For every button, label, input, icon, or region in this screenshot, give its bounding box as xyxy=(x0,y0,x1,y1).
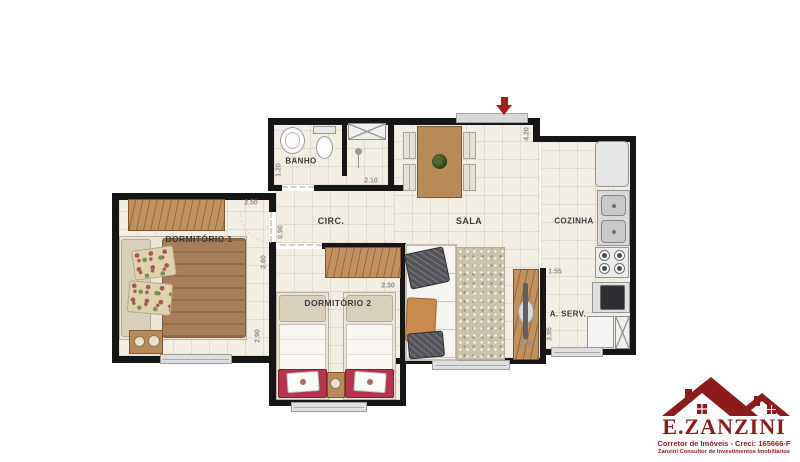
measure-dorm1-2-50: 2.50 xyxy=(244,200,258,207)
entry-door xyxy=(456,113,528,123)
window-aserv xyxy=(551,347,603,357)
sink-basin-2 xyxy=(601,220,626,243)
wall-shower-divider xyxy=(342,118,347,176)
entrance-arrow-stem xyxy=(501,97,508,105)
stove-burner-4 xyxy=(614,263,625,274)
dining-chair-4 xyxy=(463,164,476,191)
wall-right-cozinha xyxy=(630,136,636,355)
room-label-dorm2: DORMITÓRIO 2 xyxy=(304,298,371,308)
lamp-dorm2-icon xyxy=(330,378,341,389)
bathroom-sink-icon xyxy=(280,127,305,154)
measure-dorm1-2-90: 2.90 xyxy=(255,329,262,343)
bed-dorm1-pillow-2 xyxy=(127,280,174,316)
laundry-tank-icon xyxy=(587,316,614,348)
sink-basin-1 xyxy=(601,195,626,216)
wall-divider-aserv xyxy=(540,268,546,353)
measure-shower-2-10: 2.10 xyxy=(364,178,378,185)
measure-dorm2-2-30: 2.30 xyxy=(381,283,395,290)
wall-center-upper xyxy=(269,193,276,212)
dining-chair-3 xyxy=(463,132,476,159)
bed-dorm2-b-sheet xyxy=(346,324,393,371)
measure-circ-0-90: 0.90 xyxy=(278,225,285,239)
logo-name: E.ZANZINI xyxy=(650,416,798,438)
door-dorm2 xyxy=(280,244,322,246)
measure-banho-1-20: 1.20 xyxy=(276,163,283,177)
room-label-cozinha: COZINHA xyxy=(554,217,593,226)
dining-chair-2 xyxy=(403,164,416,191)
wall-bottom-banho-a xyxy=(268,185,282,191)
room-label-banho: BANHO xyxy=(285,157,316,166)
decor-dorm1-icon xyxy=(148,335,160,347)
rug xyxy=(456,247,505,360)
wall-bottom-banho-b xyxy=(314,185,394,191)
window-dorm1 xyxy=(160,354,232,364)
lamp-dorm1-icon xyxy=(134,336,145,347)
stove-burner-1 xyxy=(599,250,610,261)
wall-left-banho xyxy=(268,118,274,191)
table-plant-icon xyxy=(432,154,447,169)
bed-dorm2-a-sheet xyxy=(279,324,326,371)
wall-left-dorm1 xyxy=(112,193,119,363)
measure-dorm2-2-60: 2.60 xyxy=(261,255,268,269)
logo-roofs-icon xyxy=(658,372,790,418)
realtor-logo: E.ZANZINI Corretor de Imóveis - Creci: 1… xyxy=(650,372,798,455)
door-banho xyxy=(282,186,314,188)
measure-cozinha-1-55: 1.55 xyxy=(548,269,562,276)
bed-dorm1-duvet xyxy=(162,238,246,338)
wardrobe-dorm1 xyxy=(128,199,225,231)
toilet-bowl-icon xyxy=(316,136,333,159)
stove-burner-3 xyxy=(599,263,610,274)
measure-tvrack-2-40: 2.40 xyxy=(519,341,533,348)
floor-plan-image: BANHO CIRC. SALA COZINHA DORMITÓRIO 1 DO… xyxy=(0,0,800,462)
room-label-aserv: A. SERV. xyxy=(550,310,587,319)
window-dorm2 xyxy=(291,402,367,412)
stove-burner-2 xyxy=(614,250,625,261)
duct-shaft-icon xyxy=(615,316,630,349)
washing-machine-door xyxy=(600,285,625,310)
fridge-icon xyxy=(595,141,629,187)
room-label-dorm1: DORMITÓRIO 1 xyxy=(165,234,232,244)
dining-chair-1 xyxy=(403,132,416,159)
wardrobe-dorm2 xyxy=(325,247,401,278)
wall-center-lower xyxy=(269,242,276,404)
room-label-circ: CIRC. xyxy=(318,216,345,226)
measure-aserv-3-95: 3.95 xyxy=(547,327,554,341)
sofa-pillow-dark-2 xyxy=(407,330,445,359)
toilet-tank-icon xyxy=(313,126,336,134)
measure-sala-4-20: 4.20 xyxy=(524,127,531,141)
bed-dorm2-a-minipillow xyxy=(286,371,319,393)
shower-tray-icon xyxy=(348,123,386,140)
entrance-arrow-icon xyxy=(496,105,512,115)
shower-head-icon xyxy=(355,148,362,155)
bed-dorm1-pillow-1 xyxy=(131,245,177,281)
tv-icon xyxy=(523,283,528,339)
window-sala xyxy=(432,360,510,370)
bed-dorm2-b-minipillow xyxy=(353,371,386,393)
room-label-sala: SALA xyxy=(456,216,482,226)
wall-right-banho xyxy=(388,118,394,191)
logo-tagline: Corretor de Imóveis - Creci: 165666-F xyxy=(650,439,798,448)
logo-subline: Zanzini Consultor de Investimentos Imobi… xyxy=(650,449,798,455)
